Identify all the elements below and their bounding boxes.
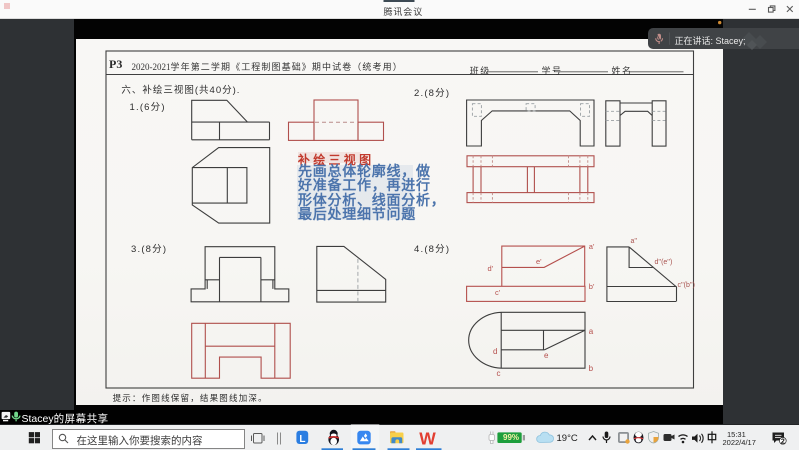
- svg-text:L: L: [299, 434, 305, 445]
- svg-text:W: W: [419, 428, 436, 448]
- svg-text:2: 2: [781, 438, 785, 445]
